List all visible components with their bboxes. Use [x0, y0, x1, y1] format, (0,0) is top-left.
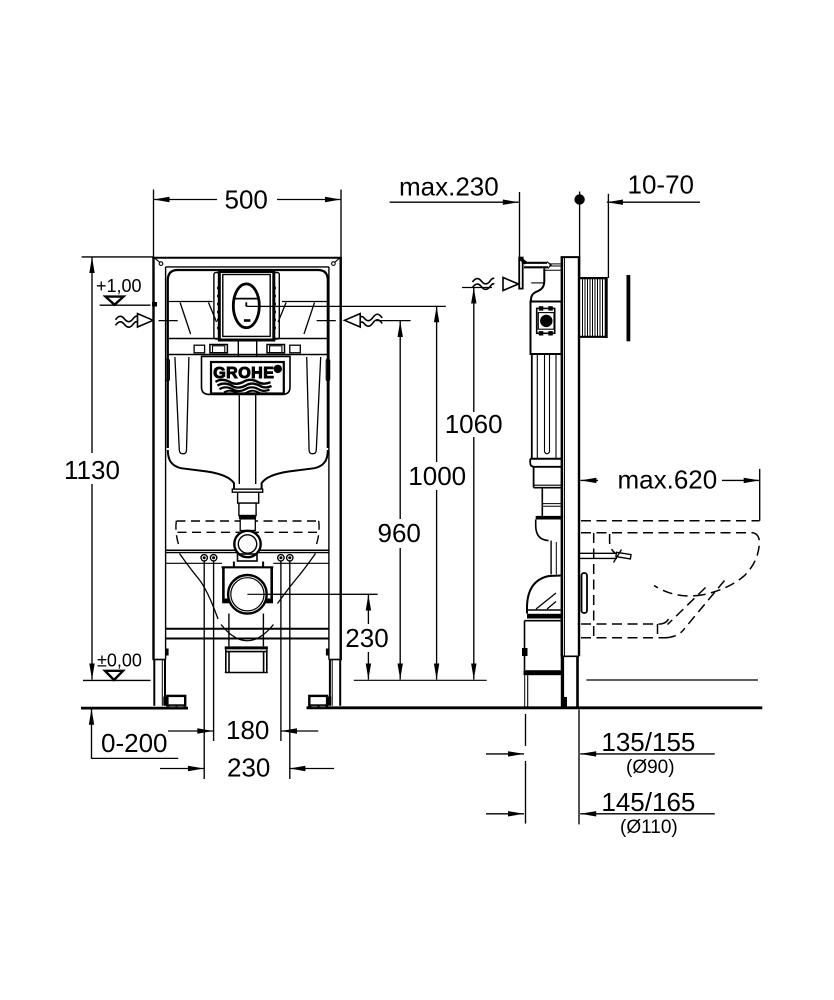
svg-text:1000: 1000	[408, 461, 466, 491]
svg-text:+1,00: +1,00	[96, 276, 142, 296]
svg-text:(Ø90): (Ø90)	[626, 757, 675, 778]
svg-text:1060: 1060	[445, 409, 503, 439]
svg-text:135/155: 135/155	[601, 727, 695, 757]
svg-text:500: 500	[225, 185, 268, 215]
svg-text:1130: 1130	[64, 455, 120, 485]
svg-text:10-70: 10-70	[628, 170, 695, 200]
svg-text:(Ø110): (Ø110)	[620, 817, 678, 838]
svg-text:230: 230	[345, 623, 388, 653]
svg-text:145/165: 145/165	[601, 787, 695, 817]
svg-text:max.230: max.230	[399, 172, 499, 202]
svg-text:180: 180	[226, 715, 269, 745]
svg-text:0-200: 0-200	[101, 728, 168, 758]
svg-text:960: 960	[378, 518, 421, 548]
svg-text:±0,00: ±0,00	[97, 651, 142, 671]
svg-text:max.620: max.620	[618, 465, 718, 495]
svg-text:230: 230	[227, 753, 270, 783]
